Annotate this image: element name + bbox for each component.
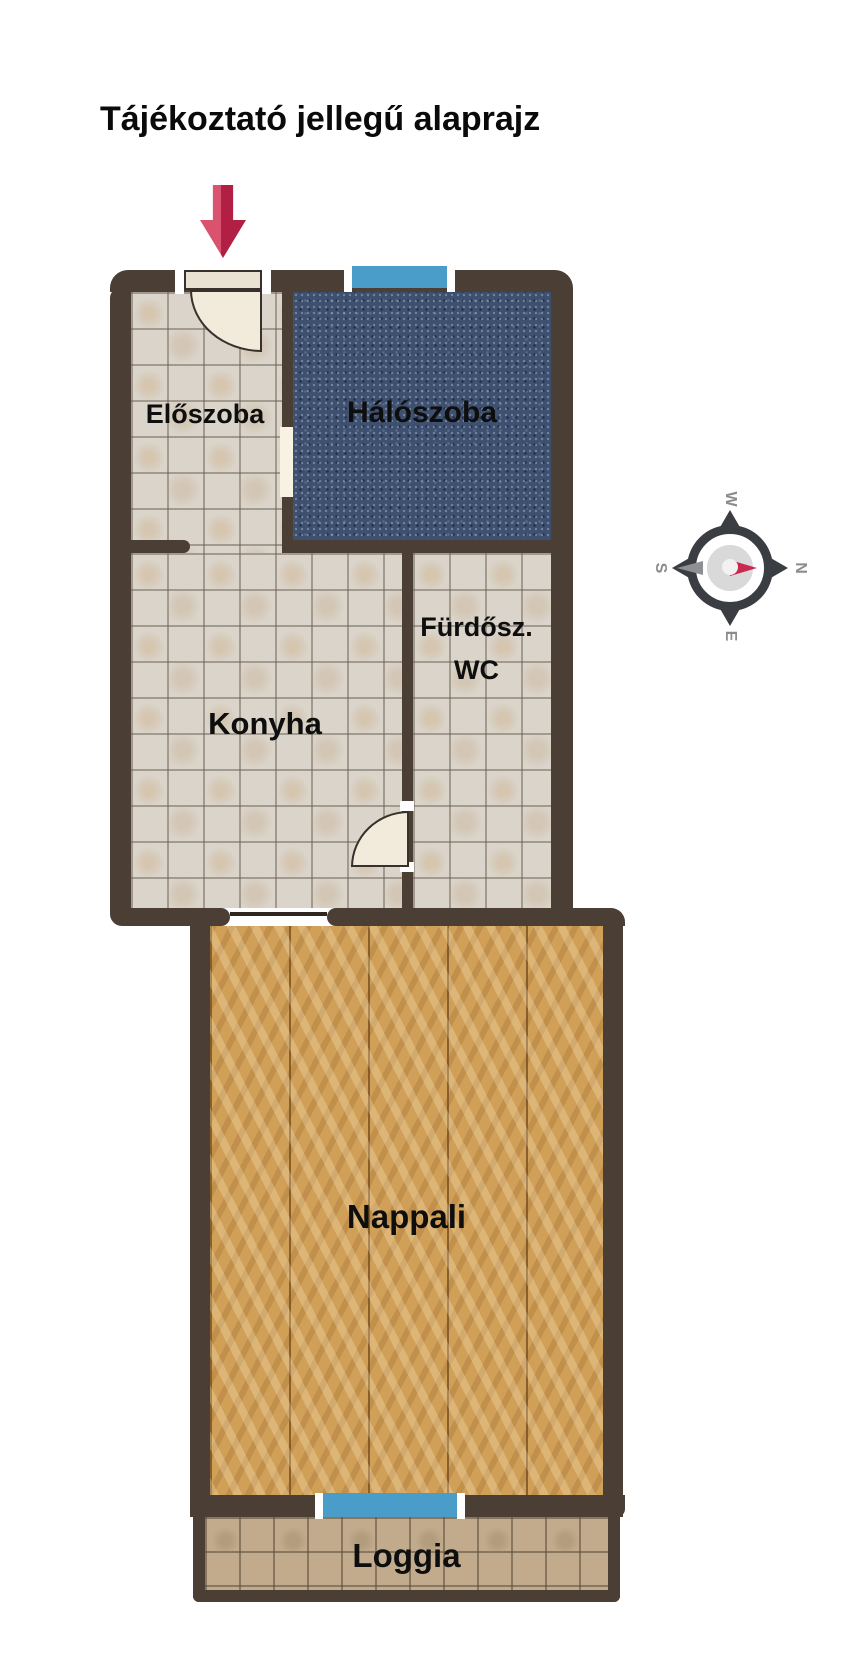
haloszoba-window-jamb-left xyxy=(344,266,352,292)
wall-stub-eloszoba-konyha xyxy=(110,540,190,553)
wall-konyha-bottom-left xyxy=(110,908,230,926)
compass-label-east: E xyxy=(720,626,740,646)
room-label-furdoszoba: Fürdősz. WC xyxy=(402,606,551,692)
compass-center-dot xyxy=(722,559,738,575)
compass-label-south: S xyxy=(650,558,670,578)
floorplan-page: Tájékoztató jellegű alaprajz Előszoba Há… xyxy=(0,0,860,1680)
opening-konyha-nappali xyxy=(230,912,327,916)
bathroom-door-jamb-top xyxy=(400,801,414,811)
compass-label-north: N xyxy=(790,558,810,578)
page-title: Tájékoztató jellegű alaprajz xyxy=(100,100,620,139)
opening-eloszoba-haloszoba xyxy=(280,427,293,497)
nappali-window-icon xyxy=(323,1493,457,1517)
entrance-door-leaf-icon xyxy=(184,270,262,290)
room-label-haloszoba: Hálószoba xyxy=(293,396,551,430)
wall-loggia-bottom xyxy=(193,1590,620,1602)
entrance-door-jamb-right xyxy=(262,268,271,294)
room-label-furdoszoba-line1: Fürdősz. xyxy=(402,606,551,649)
compass-label-west: W xyxy=(720,489,740,509)
nappali-window-jamb-right xyxy=(457,1493,465,1519)
wall-nappali-bottom-left xyxy=(190,1495,323,1517)
haloszoba-window-jamb-right xyxy=(447,266,455,292)
wall-nappali-left xyxy=(190,926,210,1517)
room-label-nappali: Nappali xyxy=(210,1198,603,1236)
wall-right xyxy=(551,288,573,908)
room-label-furdoszoba-line2: WC xyxy=(402,649,551,692)
entrance-door-jamb-left xyxy=(175,268,184,294)
room-label-konyha: Konyha xyxy=(128,706,402,742)
wall-eloszoba-haloszoba xyxy=(282,292,293,540)
wall-below-haloszoba xyxy=(282,540,573,553)
wall-left xyxy=(110,288,131,908)
room-label-loggia: Loggia xyxy=(205,1537,608,1575)
haloszoba-window-icon xyxy=(352,266,447,288)
wall-nappali-right xyxy=(603,926,623,1517)
entrance-arrow-icon xyxy=(200,185,246,258)
nappali-window-jamb-left xyxy=(315,1493,323,1519)
wall-konyha-bottom-right xyxy=(327,908,625,926)
wall-nappali-bottom-right xyxy=(457,1495,625,1517)
room-label-eloszoba: Előszoba xyxy=(128,399,282,430)
compass-needle-south-icon xyxy=(677,561,703,575)
compass-icon: W N S E xyxy=(660,498,800,638)
